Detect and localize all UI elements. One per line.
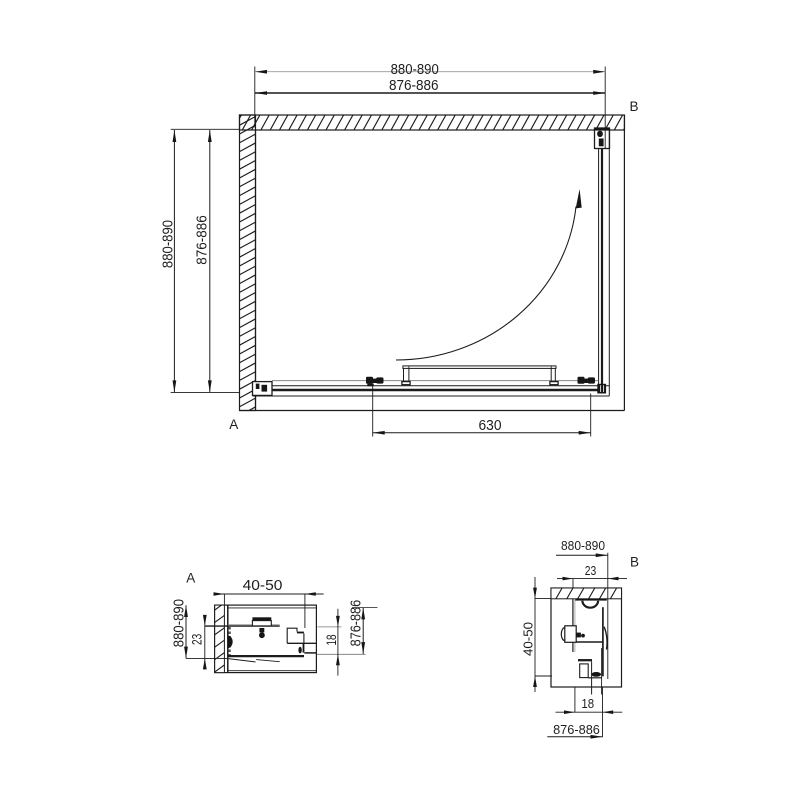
- svg-text:880-890: 880-890: [159, 220, 176, 268]
- svg-text:23: 23: [585, 564, 597, 578]
- svg-text:B: B: [629, 99, 638, 114]
- svg-text:876-886: 876-886: [348, 600, 365, 647]
- svg-text:880-890: 880-890: [171, 599, 188, 647]
- svg-text:23: 23: [189, 634, 205, 645]
- svg-text:876-886: 876-886: [389, 77, 439, 94]
- svg-text:A: A: [186, 571, 195, 586]
- svg-text:B: B: [630, 554, 639, 569]
- svg-text:40-50: 40-50: [243, 577, 283, 594]
- svg-text:18: 18: [581, 697, 594, 711]
- svg-text:630: 630: [479, 417, 502, 434]
- svg-text:18: 18: [323, 634, 339, 645]
- svg-text:880-890: 880-890: [561, 539, 605, 553]
- svg-text:40-50: 40-50: [521, 622, 535, 656]
- svg-text:876-886: 876-886: [553, 723, 600, 737]
- svg-text:A: A: [229, 417, 238, 432]
- svg-text:880-890: 880-890: [391, 61, 439, 78]
- svg-text:876-886: 876-886: [194, 215, 211, 265]
